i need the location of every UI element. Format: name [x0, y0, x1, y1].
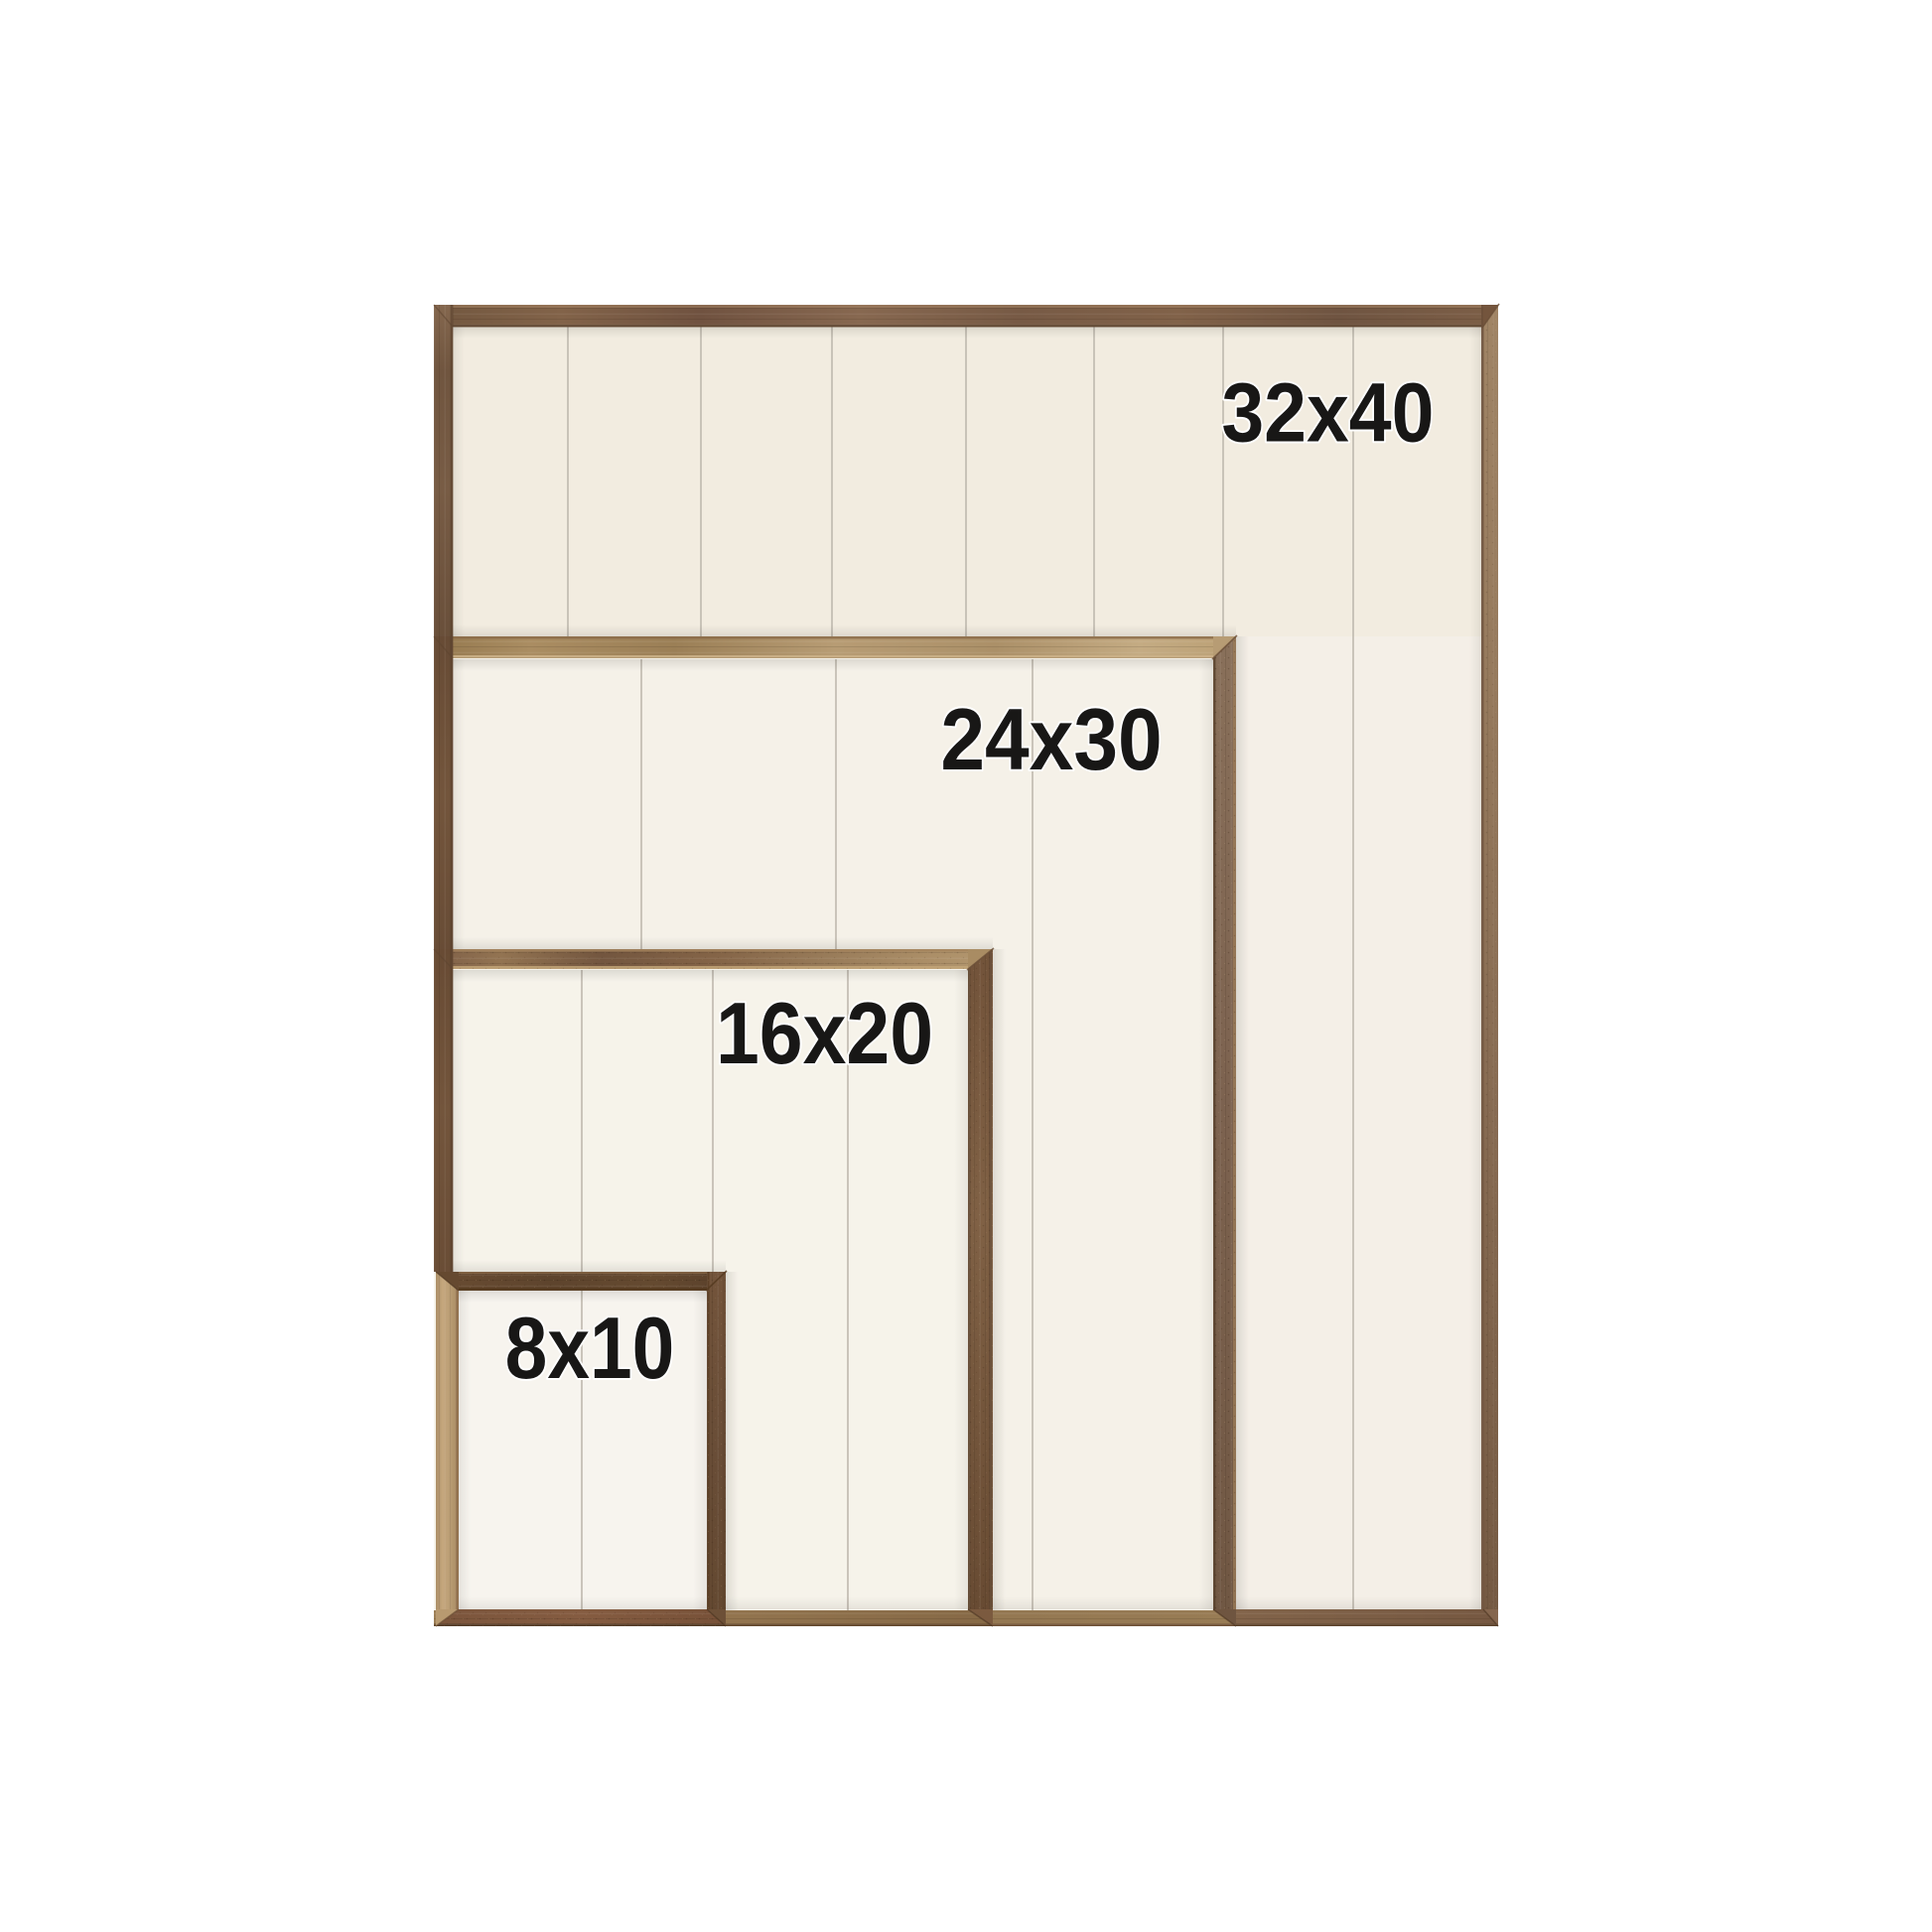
svg-text:24x30: 24x30	[940, 690, 1162, 787]
svg-text:16x20: 16x20	[716, 984, 933, 1082]
svg-text:8x10: 8x10	[505, 1300, 675, 1397]
svg-text:32x40: 32x40	[1221, 366, 1434, 460]
